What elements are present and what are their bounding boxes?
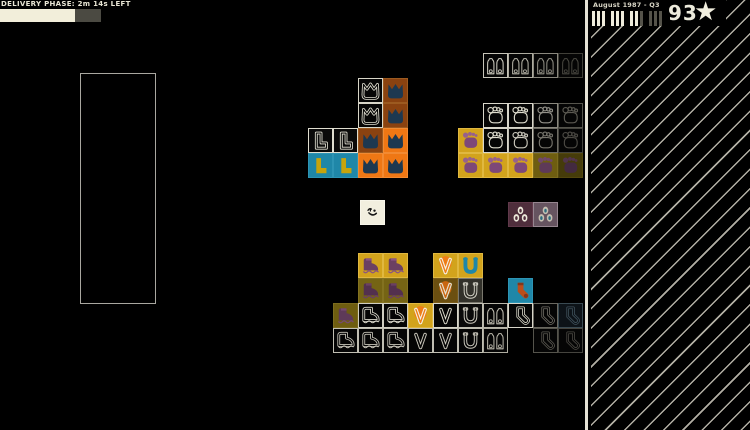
- crate-tile-foot[interactable]: [508, 103, 533, 128]
- player-character[interactable]: [360, 200, 385, 225]
- foot-icon: [460, 155, 481, 176]
- horseshoe-icon: [460, 305, 481, 326]
- boot-l-icon: [310, 155, 331, 176]
- foot-icon: [485, 130, 506, 151]
- storage-zone-outline: [80, 73, 156, 304]
- v-disc-icon: [410, 305, 431, 326]
- crate-tile-sock[interactable]: [558, 303, 583, 328]
- hiking-boot-icon: [360, 330, 381, 351]
- crate-tile-claw[interactable]: [483, 328, 508, 353]
- delivery-phase-label: DELIVERY PHASE: 2m 14s LEFT: [1, 0, 131, 8]
- claw-icon: [485, 305, 506, 326]
- quarter-date-label: August 1987 - Q3: [593, 1, 660, 9]
- foot-icon: [510, 130, 531, 151]
- wall-divider-line: [585, 0, 588, 430]
- crate-tile-foot[interactable]: [533, 103, 558, 128]
- flipper-icon: [385, 155, 406, 176]
- crate-tile-claw[interactable]: [558, 53, 583, 78]
- quarter-bar-filled: [592, 11, 595, 26]
- horseshoe-icon: [460, 255, 481, 276]
- hiking-boot-icon: [360, 255, 381, 276]
- flipper-icon: [360, 130, 381, 151]
- flipper-icon: [360, 80, 381, 101]
- crate-tile-hiking-boot[interactable]: [383, 328, 408, 353]
- timer-rest: [75, 9, 101, 22]
- v-icon: [435, 305, 456, 326]
- delivery-timer-bar: [0, 9, 101, 22]
- crate-tile-v[interactable]: [433, 303, 458, 328]
- crate-tile-boot-l[interactable]: [308, 128, 333, 153]
- hiking-boot-icon: [385, 330, 406, 351]
- crate-tile-v[interactable]: [408, 328, 433, 353]
- quarter-bar-empty: [649, 11, 652, 26]
- crate-tile-foot[interactable]: [483, 128, 508, 153]
- crate-tile-sock[interactable]: [533, 328, 558, 353]
- crate-tile-boot-l[interactable]: [333, 153, 358, 178]
- crate-tile-horseshoe[interactable]: [458, 303, 483, 328]
- crate-tile-v[interactable]: [433, 328, 458, 353]
- foot-icon: [510, 155, 531, 176]
- flipper-icon: [360, 155, 381, 176]
- sock-icon: [560, 330, 581, 351]
- crate-tile-flipper[interactable]: [383, 78, 408, 103]
- flipper-icon: [385, 130, 406, 151]
- crate-tile-horseshoe[interactable]: [458, 328, 483, 353]
- crate-tile-flipper[interactable]: [383, 128, 408, 153]
- boot-l-icon: [335, 130, 356, 151]
- crate-tile-hiking-boot[interactable]: [333, 328, 358, 353]
- quarter-bar-filled: [597, 11, 600, 26]
- crate-tile-eyes[interactable]: [508, 202, 533, 227]
- quarter-bar-filled: [621, 11, 624, 26]
- crate-tile-eyes[interactable]: [533, 202, 558, 227]
- flipper-icon: [385, 80, 406, 101]
- crate-tile-flipper[interactable]: [358, 103, 383, 128]
- sock-icon: [510, 305, 531, 326]
- hiking-boot-icon: [385, 280, 406, 301]
- crate-tile-hiking-boot[interactable]: [383, 278, 408, 303]
- quarter-bar-filled: [611, 11, 614, 26]
- foot-icon: [510, 105, 531, 126]
- crate-tile-foot[interactable]: [508, 153, 533, 178]
- v-icon: [435, 330, 456, 351]
- foot-icon: [485, 105, 506, 126]
- crate-tile-foot[interactable]: [483, 153, 508, 178]
- crate-tile-claw[interactable]: [508, 53, 533, 78]
- crate-tile-v-disc[interactable]: [433, 253, 458, 278]
- crate-tile-flipper[interactable]: [358, 153, 383, 178]
- quarter-bar-filled: [616, 11, 619, 26]
- crate-tile-sock[interactable]: [533, 303, 558, 328]
- crate-tile-foot[interactable]: [483, 103, 508, 128]
- foot-icon: [535, 130, 556, 151]
- game-viewport: DELIVERY PHASE: 2m 14s LEFT August 1987 …: [0, 0, 750, 430]
- crate-tile-hiking-boot[interactable]: [358, 303, 383, 328]
- boot-l-icon: [310, 130, 331, 151]
- crate-tile-hiking-boot[interactable]: [383, 253, 408, 278]
- crate-tile-sock[interactable]: [508, 303, 533, 328]
- crate-tile-hiking-boot[interactable]: [358, 253, 383, 278]
- hiking-boot-icon: [335, 305, 356, 326]
- flipper-icon: [385, 105, 406, 126]
- crate-tile-hiking-boot[interactable]: [358, 278, 383, 303]
- crate-tile-sock[interactable]: [508, 278, 533, 303]
- crate-tile-foot[interactable]: [558, 153, 583, 178]
- boot-l-icon: [335, 155, 356, 176]
- horseshoe-icon: [460, 280, 481, 301]
- hiking-boot-icon: [360, 305, 381, 326]
- crate-tile-v-disc[interactable]: [433, 278, 458, 303]
- timer-fill: [0, 9, 75, 22]
- crate-tile-foot[interactable]: [533, 153, 558, 178]
- horseshoe-icon: [460, 330, 481, 351]
- quarter-bar-empty: [654, 11, 657, 26]
- quarter-bar-filled: [630, 11, 633, 26]
- crate-tile-hiking-boot[interactable]: [333, 303, 358, 328]
- quarter-progress-barcode: [592, 11, 668, 26]
- claw-icon: [560, 55, 581, 76]
- foot-icon: [560, 155, 581, 176]
- claw-icon: [485, 330, 506, 351]
- crate-tile-foot[interactable]: [533, 128, 558, 153]
- claw-icon: [510, 55, 531, 76]
- foot-icon: [535, 155, 556, 176]
- sock-icon: [510, 280, 531, 301]
- crate-tile-hiking-boot[interactable]: [383, 303, 408, 328]
- foot-icon: [485, 155, 506, 176]
- quarter-bar-filled: [602, 11, 605, 26]
- eyes-icon: [535, 204, 556, 225]
- v-icon: [410, 330, 431, 351]
- crate-tile-v-disc[interactable]: [408, 303, 433, 328]
- wink-face-icon: [362, 202, 383, 223]
- crate-tile-foot[interactable]: [458, 153, 483, 178]
- crate-tile-flipper[interactable]: [383, 153, 408, 178]
- crate-tile-foot[interactable]: [558, 103, 583, 128]
- crate-tile-flipper[interactable]: [383, 103, 408, 128]
- flipper-icon: [360, 105, 381, 126]
- hiking-boot-icon: [385, 255, 406, 276]
- crate-tile-boot-l[interactable]: [308, 153, 333, 178]
- quarter-bar-empty: [640, 11, 643, 26]
- crate-tile-claw[interactable]: [533, 53, 558, 78]
- crate-tile-sock[interactable]: [558, 328, 583, 353]
- crate-tile-boot-l[interactable]: [333, 128, 358, 153]
- hiking-boot-icon: [385, 305, 406, 326]
- quarter-bar-filled: [635, 11, 638, 26]
- crate-tile-foot[interactable]: [558, 128, 583, 153]
- foot-icon: [535, 105, 556, 126]
- foot-icon: [460, 130, 481, 151]
- sock-icon: [535, 305, 556, 326]
- crate-tile-foot[interactable]: [508, 128, 533, 153]
- crate-tile-foot[interactable]: [458, 128, 483, 153]
- crate-tile-flipper[interactable]: [358, 128, 383, 153]
- claw-icon: [485, 55, 506, 76]
- crate-tile-claw[interactable]: [483, 53, 508, 78]
- crate-tile-claw[interactable]: [483, 303, 508, 328]
- warehouse-wall-stripes: [591, 0, 750, 430]
- quarter-bar-empty: [659, 11, 662, 26]
- sock-icon: [560, 305, 581, 326]
- foot-icon: [560, 105, 581, 126]
- v-disc-icon: [435, 280, 456, 301]
- crate-tile-hiking-boot[interactable]: [358, 328, 383, 353]
- sock-icon: [535, 330, 556, 351]
- star-icon: ★: [694, 0, 717, 27]
- crate-tile-flipper[interactable]: [358, 78, 383, 103]
- hiking-boot-icon: [360, 280, 381, 301]
- crate-tile-horseshoe[interactable]: [458, 253, 483, 278]
- hiking-boot-icon: [335, 330, 356, 351]
- crate-tile-horseshoe[interactable]: [458, 278, 483, 303]
- v-disc-icon: [435, 255, 456, 276]
- claw-icon: [535, 55, 556, 76]
- foot-icon: [560, 130, 581, 151]
- eyes-icon: [510, 204, 531, 225]
